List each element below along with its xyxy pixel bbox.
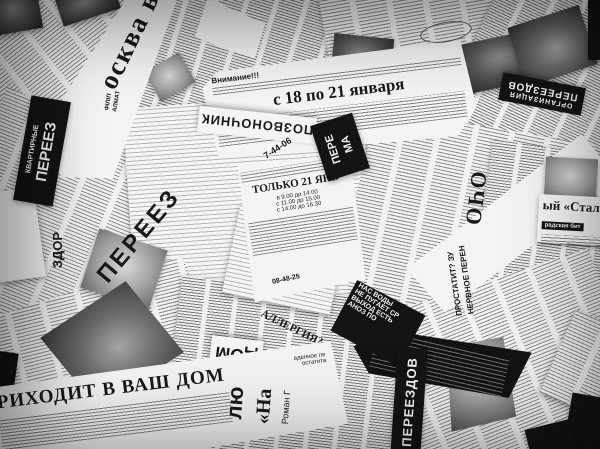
photo-fragment	[544, 157, 598, 200]
lyu-letters: лю	[221, 386, 249, 420]
pereezdov-strip-text: ПЕРЕЕЗДОВ	[398, 357, 419, 448]
newspaper-collage-photo: осква в Внимание!!! с 18 по 21 января ПО…	[0, 0, 600, 449]
na-title-text: «На	[252, 388, 277, 425]
dark-scrap	[588, 0, 600, 60]
stalingrad-subtitle: радская бит	[541, 221, 583, 231]
ma-label-text: МА	[339, 135, 356, 155]
stalingrad-headline-scrap: ый «Стал радская бит	[537, 194, 600, 246]
book-title-scrap: лю «На Роман Г	[221, 386, 292, 426]
health-label-text: ЗДОР	[50, 232, 65, 268]
stalingrad-headline: ый «Стал	[542, 197, 600, 217]
